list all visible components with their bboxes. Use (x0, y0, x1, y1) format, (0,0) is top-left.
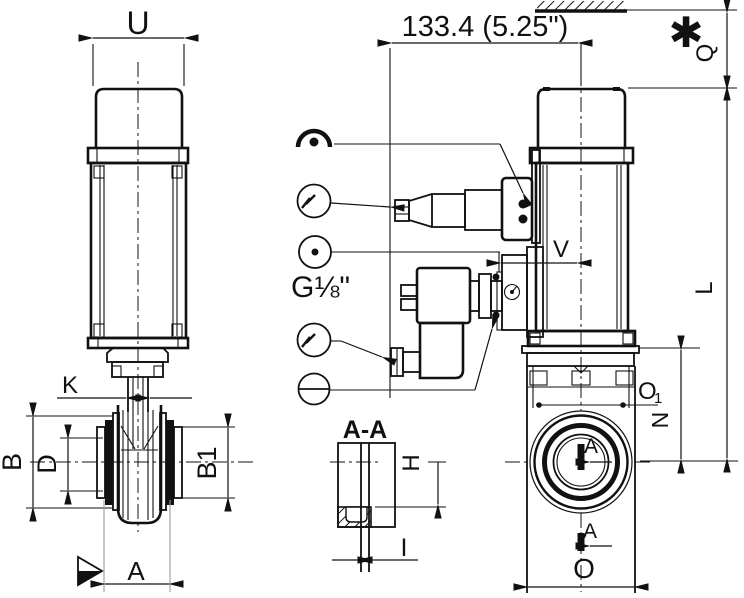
front-view (30, 62, 254, 585)
side-view: A A (391, 1, 737, 593)
flow-direction-arrow (78, 557, 102, 585)
actuator-cylinder-side (536, 163, 628, 331)
valve-dimension-drawing: U K B D B1 A A-A H I (0, 0, 744, 593)
section-arrow-label-top: A (584, 435, 598, 458)
manual-override-icon (298, 374, 330, 405)
leader-electrical-solenoid (341, 341, 382, 357)
dim-label-l: L (691, 281, 718, 294)
dim-label-b: B (0, 453, 27, 471)
section-aa-seat-profile (346, 507, 367, 522)
dim-label-o1-sub: 1 (654, 390, 662, 407)
dim-label-d: D (32, 454, 62, 474)
dim-label-k: K (62, 372, 78, 399)
section-arrow-label-bottom: A (583, 520, 597, 543)
dim-label-h: H (398, 454, 425, 471)
air-port-label: G⅛" (291, 271, 350, 304)
section-aa-detail: A-A H I (330, 416, 446, 572)
leader-position-indicator (500, 144, 523, 193)
tie-rod-nut (94, 166, 104, 178)
leader-electrical-top (331, 203, 390, 207)
actuator-cap (96, 89, 182, 148)
dim-label-u: U (126, 5, 149, 41)
dim-label-i: I (401, 534, 408, 562)
drawing-canvas: U K B D B1 A A-A H I (0, 0, 744, 593)
mounting-wall (535, 1, 737, 11)
leader-manual-override (475, 329, 492, 390)
dim-label-v: V (553, 236, 569, 263)
solenoid-coil (401, 268, 502, 323)
dim-label-overall-width: 133.4 (5.25") (402, 11, 569, 43)
dim-label-b1: B1 (192, 446, 222, 479)
dim-label-o: O (573, 553, 595, 584)
callout-symbols: G⅛" (291, 48, 523, 405)
dim-label-n: N (647, 412, 673, 429)
electrical-connection-icon-solenoid (298, 324, 331, 357)
section-aa-title: A-A (343, 416, 387, 444)
electrical-connection-icon-top (298, 185, 331, 218)
tie-rod-nut (94, 324, 104, 337)
valve-body (118, 405, 161, 523)
footnote-asterisk: ✱ (668, 9, 703, 56)
air-connection-icon (299, 236, 331, 268)
position-indicator-symbol (298, 131, 330, 147)
cable-plug (391, 323, 463, 378)
m12-connector (395, 190, 502, 230)
dim-label-a: A (127, 556, 145, 586)
